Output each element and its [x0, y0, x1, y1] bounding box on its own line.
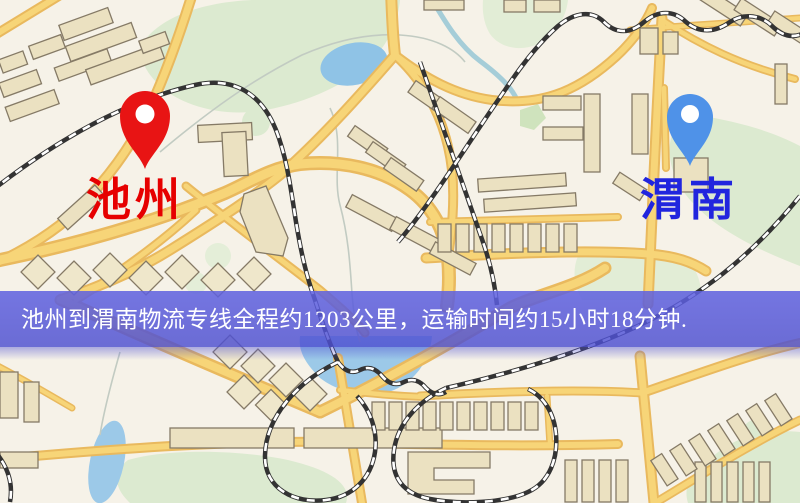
destination-map-pin-icon[interactable] — [663, 92, 717, 172]
banner-shadow — [0, 347, 800, 360]
route-info-banner: 池州到渭南物流专线全程约1203公里，运输时间约15小时18分钟. — [0, 291, 800, 347]
origin-city-label: 池州 — [86, 178, 184, 223]
origin-map-pin-icon[interactable] — [116, 89, 174, 175]
route-info-text: 池州到渭南物流专线全程约1203公里，运输时间约15小时18分钟. — [0, 291, 800, 347]
map-viewport[interactable]: 池州 渭南 池州到渭南物流专线全程约1203公里，运输时间约15小时18分钟. — [0, 0, 800, 503]
destination-city-label: 渭南 — [640, 178, 738, 223]
map-canvas[interactable] — [0, 0, 800, 503]
